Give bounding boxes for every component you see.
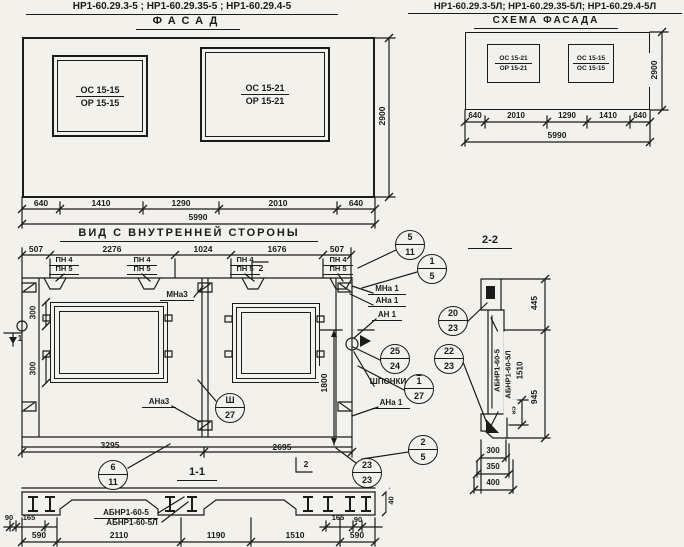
interior-window-2 — [232, 303, 320, 383]
section-mark-2-2: 2-2 — [468, 234, 512, 249]
window-mark-bottom: ОС 15-15 — [577, 64, 605, 72]
dim: 640 — [23, 198, 59, 208]
window-mark: ОС 15-21ОР 15-21 — [202, 49, 328, 140]
dim: 1024 — [183, 244, 223, 254]
rot-label-abnr-l: АБНР1-60-5Л — [504, 332, 513, 418]
dim: 640 — [460, 111, 490, 120]
dim: 2010 — [258, 198, 298, 208]
dim-2695: 2695 — [260, 442, 304, 452]
label-mna1: МНа 1 — [368, 284, 406, 295]
callout-bottom: 27 — [405, 389, 433, 402]
interior-title: ВИД С ВНУТРЕННЕЙ СТОРОНЫ — [60, 227, 318, 242]
dim: 400 — [480, 478, 506, 487]
callout-top: Ш — [216, 394, 244, 408]
label-abnr-l: АБНР1-60-5Л — [98, 518, 166, 527]
callout-bottom: 23 — [353, 473, 381, 486]
dim-445: 445 — [529, 288, 539, 318]
facade-window-1: ОС 15-15ОР 15-15 — [52, 55, 148, 137]
callout-top: 1 — [405, 375, 433, 389]
dim: 1290 — [161, 198, 201, 208]
facade-window-2: ОС 15-21ОР 15-21 — [200, 47, 330, 142]
callout-1-5: 15 — [417, 254, 447, 284]
callout-top: 5 — [396, 231, 424, 245]
label-pn5: ПН 5 — [127, 264, 157, 275]
scheme-window-1: ОС 15-21ОР 15-21 — [487, 44, 540, 83]
construction-drawing-sheet: НР1-60.29.3-5 ; НР1-60.29.35-5 ; НР1-60.… — [0, 0, 684, 547]
dim: 640 — [338, 198, 374, 208]
callout-23-23: 2323 — [352, 458, 382, 488]
dim: 1510 — [277, 530, 313, 540]
callout-top: 2 — [409, 436, 437, 450]
callout-1-27: 127 — [404, 374, 434, 404]
callout-bottom: 24 — [381, 359, 409, 372]
callout-6-11: 611 — [98, 460, 128, 490]
section-mark-1-1: 1-1 — [177, 466, 217, 481]
callout-top: 6 — [99, 461, 127, 475]
label-abnr: АБНР1-60-5 — [94, 508, 158, 519]
dim: 90 — [350, 515, 366, 524]
dim-300-top: 300 — [29, 300, 38, 326]
dim: 90 — [1, 513, 17, 522]
dim: 350 — [480, 462, 506, 471]
dim-scheme-height: 2900 — [649, 53, 659, 87]
label-pn5: ПН 5 — [49, 264, 79, 275]
dim-945: 945 — [529, 382, 539, 412]
callout-25-24: 2524 — [380, 344, 410, 374]
dim-40: 40 — [387, 489, 396, 513]
section-flag-2-top: 2 — [255, 263, 267, 273]
dim-1800: 1800 — [319, 366, 329, 400]
dim: 2276 — [92, 244, 132, 254]
callout-bottom: 23 — [435, 359, 463, 372]
section-flag-2-bottom: 2 — [300, 459, 312, 469]
callout-top: 20 — [439, 307, 467, 321]
callout-top: 23 — [353, 459, 381, 473]
dim: 507 — [21, 244, 51, 254]
subtitle-facade: ФАСАД — [136, 15, 240, 30]
dim: 165 — [327, 513, 349, 522]
window-mark-bottom: ОР 15-21 — [246, 95, 285, 106]
dim: 590 — [342, 530, 372, 540]
window-mark: ОС 15-15ОС 15-15 — [569, 45, 613, 82]
callout-2-5: 25 — [408, 435, 438, 465]
dim: 2010 — [499, 111, 533, 120]
label-an1: АН 1 — [372, 310, 402, 321]
interior-window-1 — [50, 302, 168, 383]
dim-facade-height: 2900 — [377, 99, 387, 133]
window-mark-bottom: ОР 15-21 — [500, 64, 528, 72]
label-mna3: МНа3 — [160, 290, 194, 301]
dim: 1410 — [81, 198, 121, 208]
window-mark: ОС 15-21ОР 15-21 — [488, 45, 539, 82]
dim: 1676 — [257, 244, 297, 254]
dim: 590 — [24, 530, 54, 540]
callout-bottom: 27 — [216, 408, 244, 421]
title-right: НР1-60.29.3-5Л; НР1-60.29.35-5Л; НР1-60.… — [408, 1, 682, 14]
callout-bottom: 5 — [418, 269, 446, 282]
window-mark-top: ОС 15-21 — [241, 83, 288, 95]
rot-dim-1510: 1510 — [516, 353, 525, 389]
callout-20-23: 2023 — [438, 306, 468, 336]
scheme-window-2: ОС 15-15ОС 15-15 — [568, 44, 614, 83]
dim: 1410 — [591, 111, 625, 120]
label-ana1: АНа 1 — [368, 296, 406, 307]
callout-top: 22 — [435, 345, 463, 359]
window-sash — [59, 311, 159, 374]
dim: 507 — [322, 244, 352, 254]
window-mark-top: ОС 15-21 — [495, 55, 531, 64]
dim-total: 5990 — [537, 130, 577, 140]
label-pn5: ПН 5 — [323, 264, 353, 275]
callout-22-23: 2223 — [434, 344, 464, 374]
dim-total: 5990 — [176, 212, 220, 222]
callout-III-27: Ш27 — [215, 393, 245, 423]
label-ana3: АНа3 — [142, 397, 176, 408]
dim: 165 — [18, 513, 40, 522]
dim: 640 — [625, 111, 655, 120]
dim: 300 — [480, 446, 506, 455]
rot-label-abnr: АБНР1-60-5 — [493, 332, 502, 410]
callout-bottom: 23 — [439, 321, 467, 334]
callout-top: 25 — [381, 345, 409, 359]
dim: 1290 — [550, 111, 584, 120]
dim: 2110 — [101, 530, 137, 540]
subtitle-scheme: СХЕМА ФАСАДА — [474, 15, 618, 29]
callout-bottom: 5 — [409, 450, 437, 463]
window-mark-top: ОС 15-15 — [76, 85, 123, 97]
window-mark-top: ОС 15-15 — [573, 55, 609, 64]
callout-top: 1 — [418, 255, 446, 269]
dim-300-bottom: 300 — [29, 356, 38, 382]
callout-bottom: 11 — [99, 475, 127, 488]
window-mark-bottom: ОР 15-15 — [81, 97, 120, 108]
section-flag-1-left: 1 — [15, 334, 25, 343]
dim-3295: 3295 — [88, 440, 132, 450]
window-mark: ОС 15-15ОР 15-15 — [54, 57, 146, 135]
window-sash — [241, 312, 311, 374]
dim: 1190 — [198, 530, 234, 540]
title-left: НР1-60.29.3-5 ; НР1-60.29.35-5 ; НР1-60.… — [26, 1, 338, 15]
